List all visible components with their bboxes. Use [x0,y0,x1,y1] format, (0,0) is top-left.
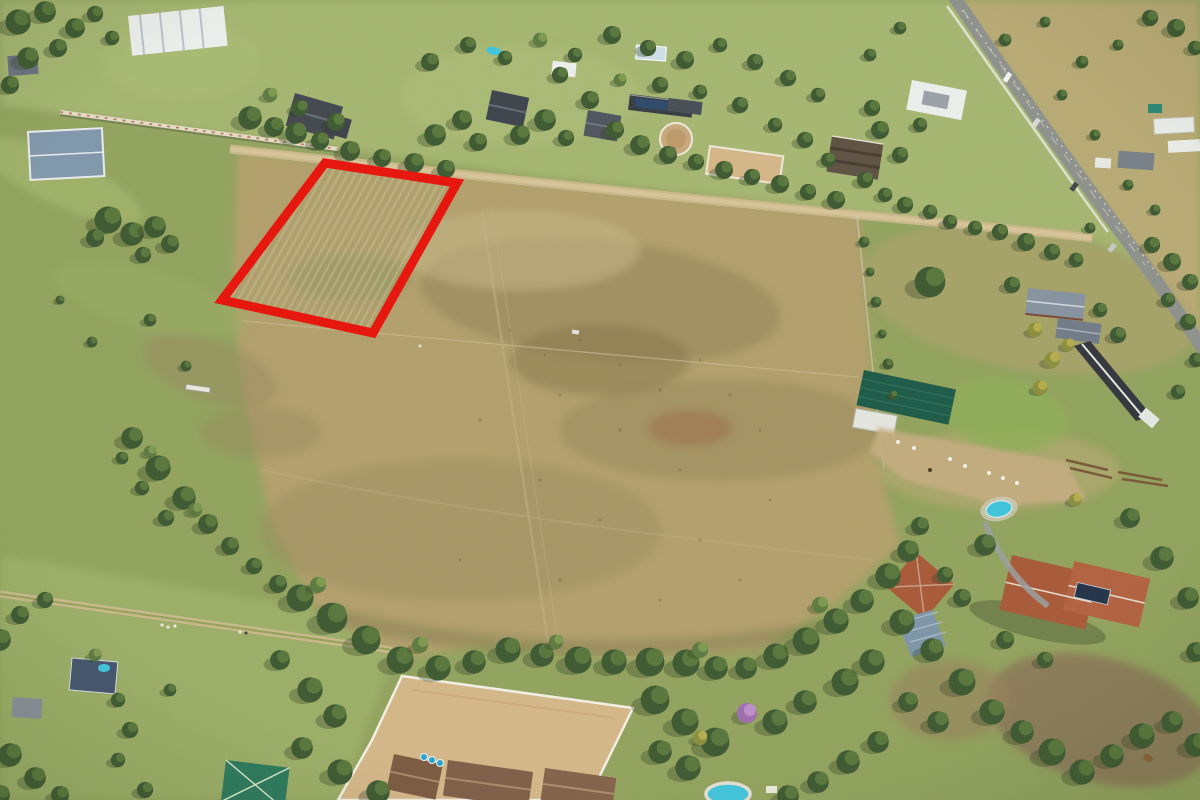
vignette [0,0,1200,800]
aerial-photo [0,0,1200,800]
aerial-photo-canvas [0,0,1200,800]
